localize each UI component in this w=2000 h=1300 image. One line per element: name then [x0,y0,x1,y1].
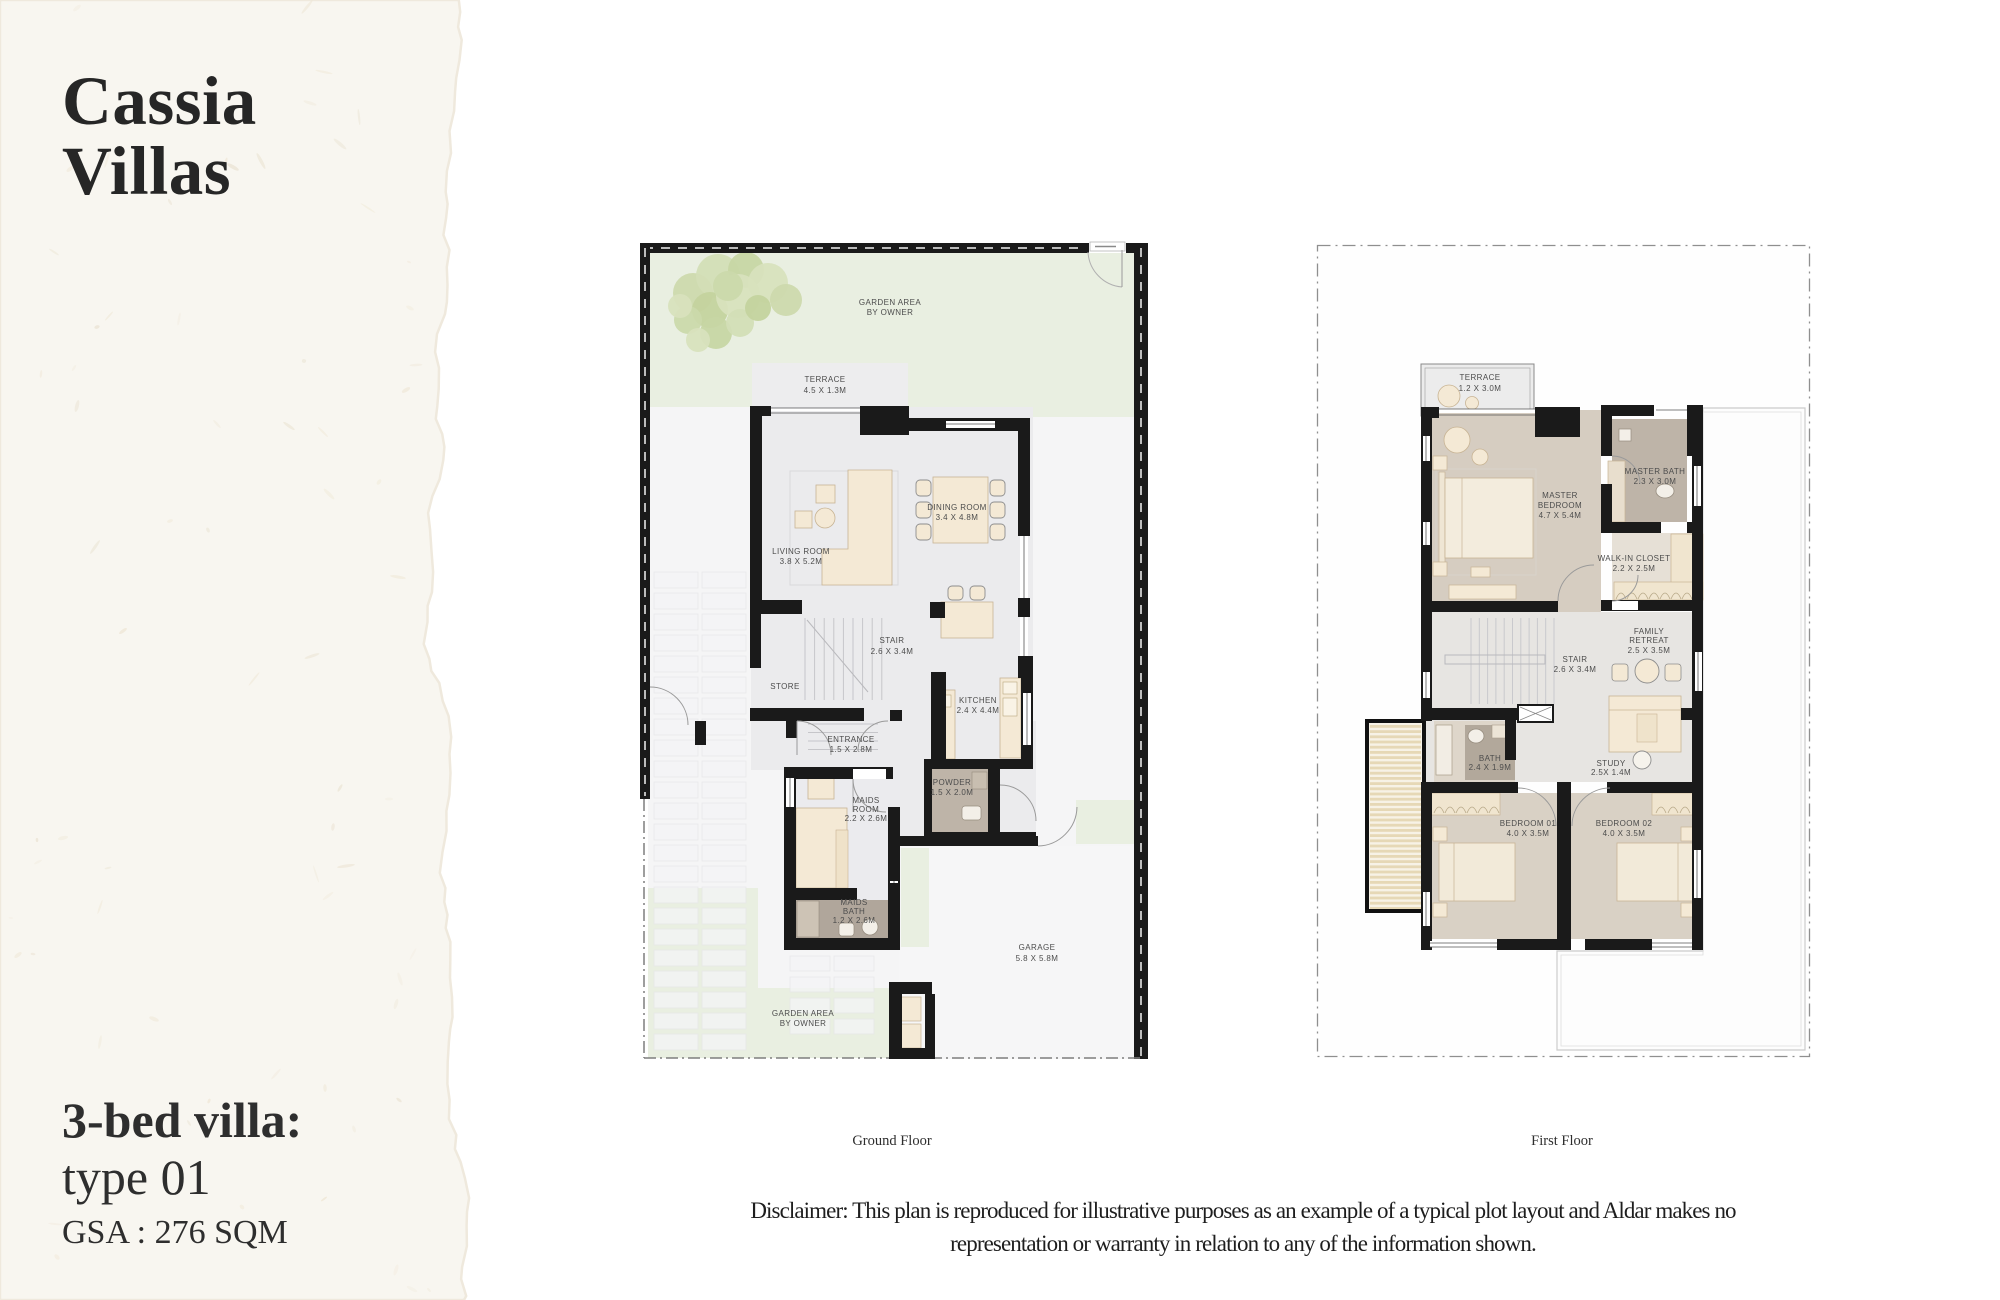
svg-text:POWDER: POWDER [933,778,971,787]
svg-text:ROOM: ROOM [853,805,880,814]
svg-text:BEDROOM: BEDROOM [1538,501,1582,510]
svg-text:2.3 X 3.0M: 2.3 X 3.0M [1634,477,1677,486]
svg-text:BY OWNER: BY OWNER [780,1019,827,1028]
svg-text:4.0 X 3.5M: 4.0 X 3.5M [1603,829,1646,838]
svg-text:TERRACE: TERRACE [804,375,845,384]
svg-text:1.2 X 2.6M: 1.2 X 2.6M [833,916,876,925]
svg-text:BATH: BATH [1479,754,1501,763]
svg-text:STAIR: STAIR [1563,655,1588,664]
svg-text:2.5 X 3.5M: 2.5 X 3.5M [1628,646,1671,655]
svg-text:LIVING ROOM: LIVING ROOM [772,547,830,556]
svg-text:GARDEN AREA: GARDEN AREA [859,298,921,307]
svg-text:WALK-IN CLOSET: WALK-IN CLOSET [1598,554,1671,563]
svg-text:3.4 X 4.8M: 3.4 X 4.8M [936,513,979,522]
svg-text:MASTER BATH: MASTER BATH [1625,467,1686,476]
svg-text:2.6 X 3.4M: 2.6 X 3.4M [1554,665,1597,674]
svg-text:2.6 X 3.4M: 2.6 X 3.4M [871,647,914,656]
svg-text:STUDY: STUDY [1596,759,1625,768]
svg-text:2.2 X 2.5M: 2.2 X 2.5M [1613,564,1656,573]
svg-text:MASTER: MASTER [1542,491,1578,500]
svg-text:TERRACE: TERRACE [1459,373,1500,382]
svg-text:KITCHEN: KITCHEN [959,696,997,705]
svg-text:1.5 X 2.8M: 1.5 X 2.8M [830,745,873,754]
svg-text:GARAGE: GARAGE [1019,943,1056,952]
svg-text:MAIDS: MAIDS [852,796,879,805]
svg-text:STORE: STORE [770,682,799,691]
svg-text:4.7 X 5.4M: 4.7 X 5.4M [1539,511,1582,520]
svg-text:5.8 X 5.8M: 5.8 X 5.8M [1016,954,1059,963]
svg-text:BATH: BATH [843,907,865,916]
svg-text:BEDROOM 02: BEDROOM 02 [1596,819,1653,828]
svg-text:2.4 X 4.4M: 2.4 X 4.4M [957,706,1000,715]
svg-text:2.4 X 1.9M: 2.4 X 1.9M [1469,763,1512,772]
svg-text:BY OWNER: BY OWNER [867,308,914,317]
svg-text:STAIR: STAIR [880,636,905,645]
svg-text:MAIDS: MAIDS [840,898,867,907]
svg-text:1.2 X 3.0M: 1.2 X 3.0M [1459,384,1502,393]
svg-text:BEDROOM 01: BEDROOM 01 [1500,819,1557,828]
svg-text:DINING ROOM: DINING ROOM [927,503,987,512]
svg-text:2.5X 1.4M: 2.5X 1.4M [1591,768,1631,777]
svg-text:1.5 X 2.0M: 1.5 X 2.0M [931,788,974,797]
svg-text:4.5 X 1.3M: 4.5 X 1.3M [804,386,847,395]
svg-text:2.2 X 2.6M: 2.2 X 2.6M [845,814,888,823]
svg-text:4.0 X 3.5M: 4.0 X 3.5M [1507,829,1550,838]
svg-text:3.8 X 5.2M: 3.8 X 5.2M [780,557,823,566]
svg-text:FAMILY: FAMILY [1634,627,1665,636]
svg-text:ENTRANCE: ENTRANCE [827,735,874,744]
svg-text:RETREAT: RETREAT [1629,636,1669,645]
svg-text:GARDEN AREA: GARDEN AREA [772,1009,834,1018]
